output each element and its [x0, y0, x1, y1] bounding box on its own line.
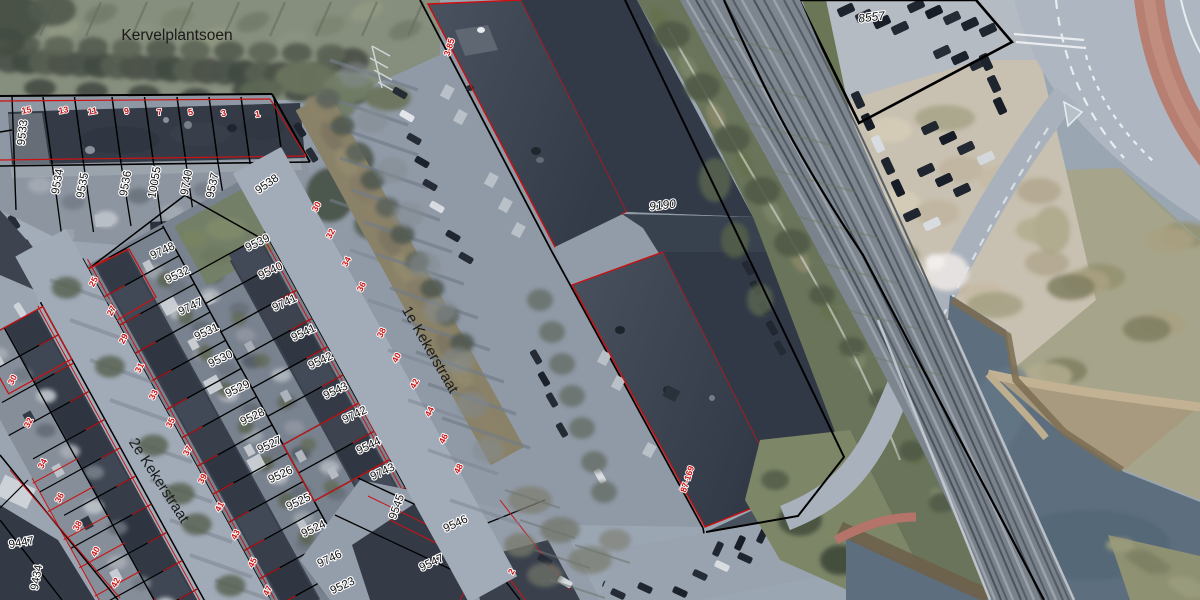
svg-text:13: 13 — [58, 104, 69, 116]
svg-text:Kervelplantsoen: Kervelplantsoen — [121, 27, 232, 44]
svg-text:15: 15 — [21, 104, 32, 116]
svg-text:11: 11 — [87, 105, 98, 116]
